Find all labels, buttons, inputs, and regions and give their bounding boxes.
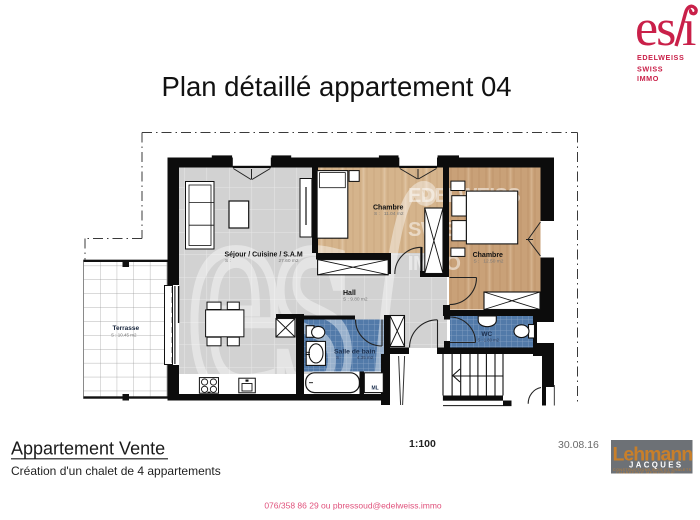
svg-text:S : 1.80 m2: S : 1.80 m2 bbox=[478, 338, 500, 343]
svg-text:S :: S : bbox=[336, 355, 342, 360]
svg-text:Terrasse: Terrasse bbox=[113, 325, 140, 332]
svg-text:Création d'un chalet de 4 appa: Création d'un chalet de 4 appartements bbox=[11, 464, 221, 478]
svg-text:SWISS: SWISS bbox=[637, 65, 663, 74]
svg-text:IMMO: IMMO bbox=[637, 74, 659, 83]
svg-text:Plan détaillé appartement 04: Plan détaillé appartement 04 bbox=[162, 71, 512, 102]
svg-text:Chambre: Chambre bbox=[373, 205, 403, 212]
svg-text:1:100: 1:100 bbox=[409, 438, 436, 450]
svg-text:4.35 m2: 4.35 m2 bbox=[357, 355, 374, 360]
svg-text:S : 10.45 m2: S : 10.45 m2 bbox=[111, 333, 137, 338]
svg-text:Chambre: Chambre bbox=[473, 252, 503, 259]
svg-text:EDELWEISS: EDELWEISS bbox=[637, 53, 684, 62]
svg-text:30.08.16: 30.08.16 bbox=[558, 439, 599, 451]
svg-text:S : 12.50 m2: S : 12.50 m2 bbox=[474, 259, 504, 265]
svg-text:S : 9.80 m2: S : 9.80 m2 bbox=[343, 297, 368, 303]
svg-text:27.60 m2: 27.60 m2 bbox=[279, 258, 299, 264]
svg-text:S : 11.04 m2: S : 11.04 m2 bbox=[374, 211, 404, 217]
svg-text:Hall: Hall bbox=[343, 290, 356, 297]
svg-text:076/358 86 29 ou pbressoud@ede: 076/358 86 29 ou pbressoud@edelweiss.imm… bbox=[264, 501, 442, 511]
svg-text:Séjour / Cuisine / S.A.M: Séjour / Cuisine / S.A.M bbox=[225, 252, 303, 259]
svg-text:S :: S : bbox=[225, 258, 231, 264]
svg-text:ML: ML bbox=[372, 386, 379, 392]
svg-text:es: es bbox=[635, 0, 675, 57]
svg-text:Appartement Vente: Appartement Vente bbox=[11, 439, 165, 459]
